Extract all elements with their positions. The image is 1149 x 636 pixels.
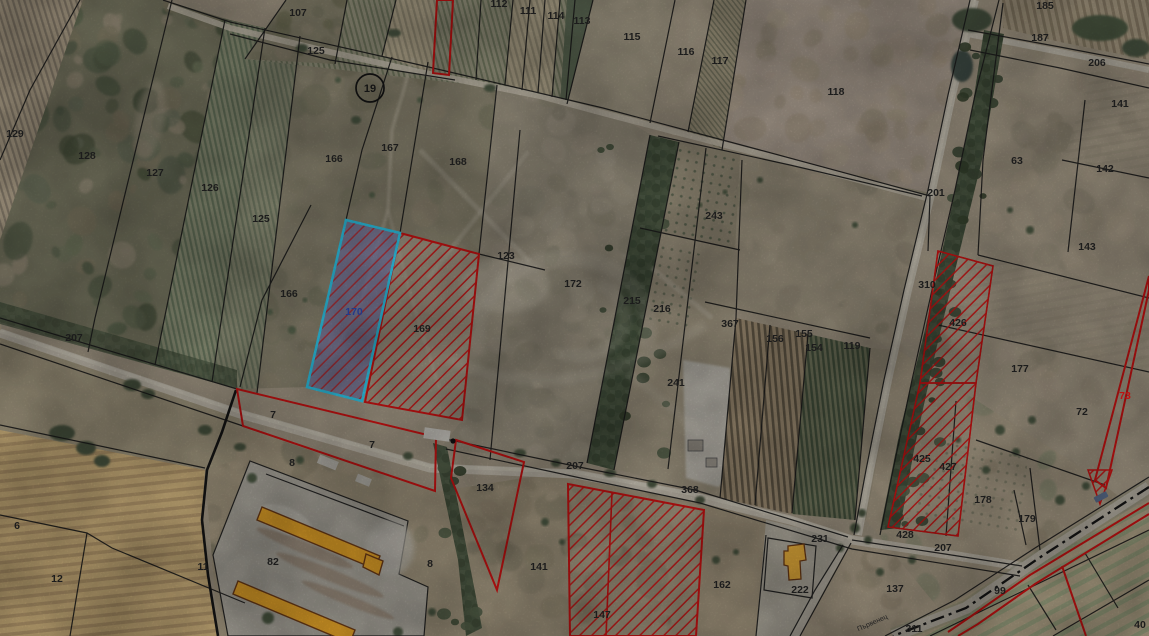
- svg-text:63: 63: [1011, 155, 1023, 167]
- svg-text:368: 368: [681, 484, 699, 496]
- svg-text:428: 428: [896, 529, 914, 541]
- svg-text:425: 425: [913, 453, 931, 465]
- svg-text:111: 111: [520, 5, 537, 17]
- svg-text:107: 107: [289, 7, 307, 19]
- svg-text:125: 125: [307, 45, 325, 57]
- svg-text:99: 99: [994, 585, 1006, 597]
- svg-text:72: 72: [1076, 406, 1088, 418]
- svg-text:7: 7: [270, 409, 276, 421]
- svg-text:137: 137: [886, 583, 904, 595]
- svg-text:367: 367: [721, 318, 739, 330]
- svg-text:162: 162: [713, 579, 731, 591]
- svg-text:143: 143: [1078, 241, 1096, 253]
- svg-text:426: 426: [949, 317, 967, 329]
- svg-text:178: 178: [974, 494, 992, 506]
- svg-text:127: 127: [146, 167, 164, 179]
- svg-text:231: 231: [811, 533, 829, 545]
- svg-text:115: 115: [624, 31, 641, 43]
- svg-text:169: 169: [413, 323, 431, 335]
- svg-text:141: 141: [530, 561, 548, 573]
- svg-text:185: 185: [1036, 0, 1054, 12]
- svg-text:216: 216: [653, 303, 671, 315]
- svg-text:179: 179: [1018, 513, 1036, 525]
- svg-text:206: 206: [1088, 57, 1106, 69]
- svg-text:207: 207: [566, 460, 584, 472]
- svg-text:73: 73: [1119, 390, 1131, 402]
- svg-text:156: 156: [766, 333, 784, 345]
- svg-text:311: 311: [906, 623, 923, 635]
- svg-text:166: 166: [325, 153, 343, 165]
- svg-text:8: 8: [289, 457, 295, 469]
- svg-text:142: 142: [1096, 163, 1114, 175]
- svg-text:155: 155: [795, 328, 813, 340]
- svg-text:222: 222: [791, 584, 809, 596]
- svg-text:141: 141: [1111, 98, 1129, 110]
- svg-text:207: 207: [934, 542, 952, 554]
- svg-text:126: 126: [201, 182, 219, 194]
- svg-text:12: 12: [51, 573, 63, 585]
- svg-text:118: 118: [828, 86, 845, 98]
- svg-text:123: 123: [497, 250, 515, 262]
- svg-text:134: 134: [476, 482, 494, 494]
- svg-text:117: 117: [712, 55, 729, 67]
- svg-text:187: 187: [1031, 32, 1049, 44]
- svg-text:241: 241: [667, 377, 685, 389]
- svg-text:154: 154: [805, 342, 823, 354]
- svg-text:167: 167: [381, 142, 399, 154]
- svg-text:147: 147: [593, 609, 611, 621]
- svg-text:427: 427: [939, 461, 957, 473]
- svg-text:116: 116: [678, 46, 695, 58]
- svg-text:310: 310: [918, 279, 936, 291]
- svg-text:112: 112: [491, 0, 508, 10]
- svg-text:114: 114: [548, 10, 565, 22]
- svg-text:207: 207: [65, 332, 83, 344]
- svg-text:125: 125: [252, 213, 270, 225]
- svg-text:215: 215: [623, 295, 641, 307]
- svg-text:6: 6: [14, 520, 20, 532]
- svg-text:11: 11: [197, 561, 208, 573]
- svg-text:170: 170: [345, 306, 363, 318]
- svg-text:201: 201: [927, 187, 945, 199]
- svg-text:172: 172: [564, 278, 582, 290]
- svg-text:243: 243: [705, 210, 723, 222]
- svg-text:168: 168: [449, 156, 467, 168]
- svg-text:8: 8: [427, 558, 433, 570]
- svg-text:177: 177: [1011, 363, 1029, 375]
- svg-text:40: 40: [1134, 619, 1146, 631]
- svg-text:166: 166: [280, 288, 298, 300]
- svg-text:129: 129: [6, 128, 24, 140]
- svg-text:7: 7: [369, 439, 375, 451]
- svg-text:119: 119: [844, 340, 861, 352]
- svg-text:113: 113: [574, 15, 591, 27]
- svg-text:82: 82: [267, 556, 279, 568]
- svg-text:128: 128: [78, 150, 96, 162]
